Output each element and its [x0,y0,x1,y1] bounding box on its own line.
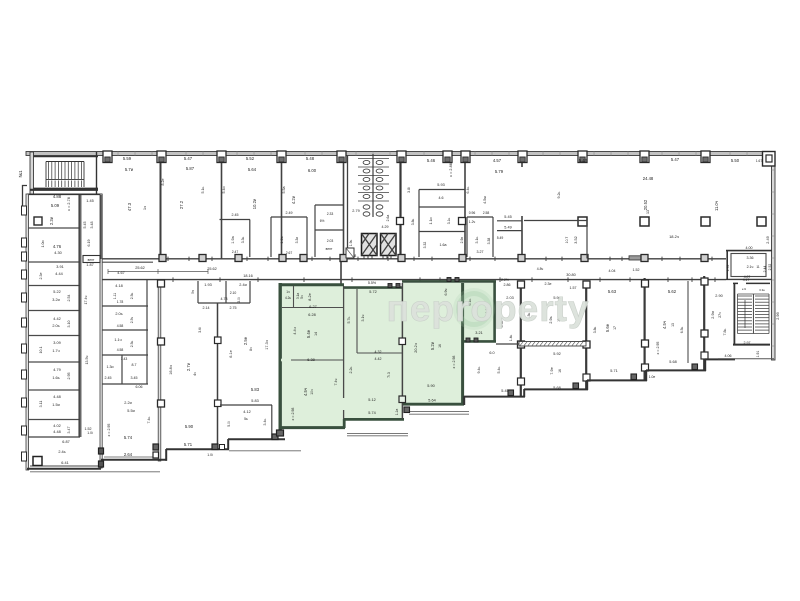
svg-text:1.67: 1.67 [756,159,762,163]
svg-text:18.16: 18.16 [243,274,253,278]
svg-text:3.3и: 3.3и [295,237,299,244]
svg-text:27ч: 27ч [718,312,722,318]
svg-text:14: 14 [314,332,318,336]
svg-text:5.49: 5.49 [497,236,504,240]
svg-text:1.4ь: 1.4ь [509,335,513,342]
svg-text:17: 17 [613,326,617,330]
svg-text:1.9а: 1.9а [231,235,235,243]
svg-text:13.5ч: 13.5ч [85,355,89,364]
svg-text:5.09: 5.09 [51,203,60,208]
svg-text:2.6а: 2.6а [386,215,390,222]
svg-text:2.3е: 2.3е [39,273,43,280]
svg-text:5.7и: 5.7и [125,167,134,172]
svg-text:3.38: 3.38 [487,238,491,245]
svg-text:6%: 6% [320,219,325,223]
svg-text:2.0ь: 2.0ь [115,312,122,316]
svg-text:1.9ь: 1.9ь [280,236,284,243]
svg-text:1.91: 1.91 [756,351,760,358]
svg-text:2.03: 2.03 [327,239,334,243]
svg-text:25.62: 25.62 [207,267,217,271]
svg-text:6.5ь: 6.5ь [680,327,684,334]
svg-text:3.1ч: 3.1ч [361,314,365,321]
svg-text:5.5%: 5.5% [368,281,377,285]
svg-text:18.2ч: 18.2ч [669,234,679,239]
svg-text:5.5а: 5.5а [282,187,286,194]
svg-text:вент: вент [88,258,95,262]
svg-text:4.07: 4.07 [744,275,751,279]
svg-text:1.7ч: 1.7ч [52,349,59,353]
svg-text:4.06: 4.06 [725,354,732,358]
svg-text:2.95: 2.95 [67,373,71,380]
svg-text:47.3: 47.3 [127,202,132,211]
svg-text:4.78: 4.78 [221,297,228,301]
svg-text:20.2ч: 20.2ч [414,343,418,352]
svg-text:2.79: 2.79 [352,209,359,213]
svg-text:10.2и: 10.2и [252,198,257,209]
svg-text:4.12: 4.12 [243,410,250,414]
svg-text:2.44: 2.44 [763,266,767,273]
svg-text:4.30: 4.30 [54,251,61,255]
svg-text:6.06: 6.06 [136,385,143,389]
svg-text:5.52: 5.52 [246,156,255,161]
svg-text:10ч: 10ч [310,389,314,395]
svg-text:7і.3: 7і.3 [387,372,391,378]
svg-text:2.9и: 2.9и [711,311,715,318]
svg-text:8.2е: 8.2е [161,179,165,186]
svg-text:5.48: 5.48 [306,156,315,161]
svg-text:4.42: 4.42 [53,317,60,321]
svg-text:6.28: 6.28 [308,313,315,317]
svg-text:3.48: 3.48 [90,222,94,229]
svg-text:3.45: 3.45 [131,376,138,380]
svg-text:7.9е: 7.9е [550,367,554,374]
svg-text:7.8ь: 7.8ь [723,328,727,335]
svg-text:6.4ь: 6.4ь [466,186,470,193]
svg-text:5.68: 5.68 [669,360,676,364]
svg-text:6.00: 6.00 [308,168,317,173]
svg-text:2.1ч: 2.1ч [747,265,754,269]
svg-text:2.5ч: 2.5ч [130,317,134,324]
svg-text:5.6е: 5.6е [605,323,610,332]
svg-text:1ч: 1ч [143,206,147,210]
svg-text:5.62: 5.62 [668,289,677,294]
svg-text:5.5и: 5.5и [127,409,134,413]
svg-text:1.78: 1.78 [117,300,124,304]
svg-text:5.4ь: 5.4ь [497,366,501,373]
svg-text:2.2%: 2.2% [501,278,509,282]
svg-text:3.47: 3.47 [67,427,71,434]
svg-text:2.33: 2.33 [327,212,334,216]
svg-text:3.1ь: 3.1ь [447,218,451,225]
svg-text:11: 11 [756,265,760,269]
svg-text:5ь: 5ь [244,417,248,421]
svg-text:1.9ь: 1.9ь [349,240,353,247]
svg-text:8.7: 8.7 [132,363,137,367]
svg-text:3.3е: 3.3е [759,288,765,292]
svg-text:9.4ь: 9.4ь [477,366,481,373]
svg-text:2.64: 2.64 [124,452,133,457]
svg-text:5.83: 5.83 [251,399,258,403]
svg-text:1.3и: 1.3и [106,365,113,369]
svg-text:4.42: 4.42 [375,357,382,361]
svg-text:5.47: 5.47 [184,156,193,161]
svg-text:20.52: 20.52 [643,199,648,210]
svg-text:2.0ь: 2.0ь [52,324,59,328]
svg-text:5.22: 5.22 [53,290,60,294]
svg-text:5.4и: 5.4и [222,186,226,193]
svg-text:1.93: 1.93 [204,283,211,287]
svg-text:3.2и: 3.2и [52,298,59,302]
svg-text:3.1ь: 3.1ь [475,236,479,243]
svg-text:5.92: 5.92 [553,352,560,356]
svg-text:10.7: 10.7 [565,237,569,244]
svg-text:2.9и: 2.9и [460,237,464,244]
svg-text:4.76: 4.76 [53,244,62,249]
svg-text:10.1: 10.1 [39,347,43,354]
svg-text:4.2ь: 4.2ь [285,296,291,300]
svg-text:5ч: 5ч [300,295,304,299]
svg-text:х = 2.86: х = 2.86 [449,163,453,177]
svg-text:7.4ч: 7.4ч [334,378,338,385]
svg-text:1.0и: 1.0и [41,240,45,247]
svg-text:1ч: 1ч [286,290,290,294]
svg-text:3.3ь: 3.3ь [241,237,245,244]
svg-text:0.96: 0.96 [469,211,476,215]
svg-text:2.3е: 2.3е [545,282,552,286]
svg-text:2.75: 2.75 [230,306,237,310]
svg-text:2.49: 2.49 [286,211,293,215]
svg-text:2.10: 2.10 [230,291,237,295]
svg-text:х = 2.95: х = 2.95 [656,342,660,355]
svg-text:4.00: 4.00 [746,246,753,250]
svg-text:4.67: 4.67 [117,271,124,275]
svg-text:2.3и: 2.3и [49,216,54,225]
svg-text:3.09: 3.09 [53,341,60,345]
svg-text:2.5е: 2.5е [243,336,248,345]
svg-text:2.9б: 2.9б [776,311,780,319]
svg-text:25.62: 25.62 [135,266,145,270]
svg-text:6.41: 6.41 [61,461,68,465]
svg-text:2.45: 2.45 [232,213,239,217]
svg-text:2.5ь: 2.5ь [130,341,134,348]
svg-text:27.2: 27.2 [179,200,184,209]
svg-text:9.2ь: 9.2ь [557,191,561,198]
svg-text:4.88: 4.88 [53,194,62,199]
svg-text:5.0і: 5.0і [227,421,231,427]
svg-text:3.8ь: 3.8ь [593,327,597,334]
svg-text:5.1ь: 5.1ь [201,186,205,193]
svg-text:5.93: 5.93 [437,183,444,187]
svg-text:16: 16 [558,369,562,373]
svg-text:3.11: 3.11 [39,401,43,408]
svg-text:3.36: 3.36 [747,256,754,260]
svg-text:4.5ч: 4.5ч [662,321,667,329]
svg-text:4.04: 4.04 [609,269,616,273]
svg-text:4.44: 4.44 [55,272,62,276]
svg-text:2.97: 2.97 [744,341,751,345]
svg-text:5.59: 5.59 [123,156,132,161]
svg-text:6.87: 6.87 [62,440,69,444]
svg-text:5.72: 5.72 [369,290,376,294]
svg-text:5.74: 5.74 [368,411,375,415]
svg-text:5.87: 5.87 [186,166,195,171]
svg-text:5.4е: 5.4е [306,329,311,338]
svg-text:11.0ч: 11.0ч [714,201,719,211]
svg-text:4.29: 4.29 [382,225,389,229]
svg-text:4.4ч: 4.4ч [293,327,297,334]
svg-text:5.71: 5.71 [610,369,617,373]
svg-text:3.10: 3.10 [67,321,71,328]
svg-text:5.46: 5.46 [427,158,436,163]
svg-text:х = 2.95: х = 2.95 [107,424,111,437]
svg-text:5.50: 5.50 [731,158,740,163]
svg-text:8ч: 8ч [249,347,253,351]
svg-text:5.83: 5.83 [251,387,260,392]
svg-text:2.2ь: 2.2ь [349,366,353,373]
svg-text:5.7ь: 5.7ь [347,316,351,323]
svg-text:2.90: 2.90 [715,294,722,298]
svg-text:17.3ч: 17.3ч [265,340,269,349]
svg-text:5.64: 5.64 [428,399,435,403]
svg-text:вент: вент [326,247,333,251]
svg-text:1.0е: 1.0е [649,375,656,379]
svg-text:2.45: 2.45 [105,376,112,380]
svg-text:13: 13 [646,210,650,214]
svg-text:4.5ч: 4.5ч [303,388,308,396]
svg-text:13: 13 [671,323,675,327]
svg-text:3.0і: 3.0і [237,297,241,303]
svg-text:6.19: 6.19 [87,240,91,247]
svg-text:2.86: 2.86 [504,283,511,287]
svg-text:6.0: 6.0 [489,351,494,355]
svg-text:5ч: 5ч [191,290,195,294]
svg-text:5.74: 5.74 [124,435,133,440]
svg-text:1.72: 1.72 [726,265,730,272]
svg-text:16.8ч: 16.8ч [169,365,173,374]
svg-text:8.2е: 8.2е [308,293,312,300]
svg-text:3.27: 3.27 [477,250,484,254]
svg-text:1.1в: 1.1в [395,409,399,416]
svg-text:1.0і: 1.0і [207,453,213,457]
svg-text:5.12: 5.12 [368,398,375,402]
svg-text:5.46: 5.46 [579,158,588,163]
svg-text:6.27: 6.27 [309,305,316,309]
svg-text:2.2и: 2.2и [124,401,131,405]
svg-text:5.63: 5.63 [608,289,617,294]
svg-text:1.1и: 1.1и [429,217,433,224]
svg-text:4ч: 4ч [193,372,197,376]
svg-text:4.79: 4.79 [53,368,60,372]
svg-text:пеproperty: пеproperty [386,288,589,329]
svg-text:1.43: 1.43 [121,357,128,361]
svg-text:5.45: 5.45 [504,215,511,219]
svg-text:1.11: 1.11 [113,293,117,299]
svg-text:5.47: 5.47 [671,157,680,162]
svg-text:1.6ь: 1.6ь [52,376,59,380]
svg-text:1.1ч: 1.1ч [114,338,121,342]
svg-text:2.52: 2.52 [768,264,772,271]
svg-text:4.57: 4.57 [493,158,502,163]
svg-text:1.5и: 1.5и [52,403,59,407]
svg-text:4.6: 4.6 [439,196,444,200]
svg-text:1.87: 1.87 [86,263,93,267]
svg-text:3.91: 3.91 [56,265,63,269]
svg-text:4.02: 4.02 [53,424,60,428]
svg-text:2.7и: 2.7и [186,362,191,371]
svg-text:№1: №1 [18,170,23,178]
svg-text:2.54: 2.54 [67,295,71,302]
svg-text:1.0і: 1.0і [87,431,93,435]
svg-text:1.6а: 1.6а [440,243,447,247]
svg-text:3.52: 3.52 [574,236,578,243]
svg-text:4.32: 4.32 [375,350,382,354]
svg-text:2.4ь: 2.4ь [58,450,65,454]
svg-text:5.79: 5.79 [495,169,504,174]
svg-text:5.45: 5.45 [83,222,87,229]
svg-text:х = 2.98: х = 2.98 [452,356,456,369]
svg-text:3.32: 3.32 [423,242,427,249]
svg-text:5.90: 5.90 [427,384,434,388]
svg-text:3.4ь: 3.4ь [263,418,267,425]
svg-text:2.14: 2.14 [203,306,210,310]
svg-text:2.49: 2.49 [766,236,770,243]
svg-text:1.45: 1.45 [86,199,93,203]
svg-text:5.71: 5.71 [184,442,193,447]
svg-text:7.4ь: 7.4ь [147,416,151,423]
svg-text:2.4и: 2.4и [239,283,246,287]
svg-text:4.58: 4.58 [117,324,124,328]
svg-text:1.52: 1.52 [633,268,640,272]
svg-text:5.90: 5.90 [185,424,194,429]
svg-text:16: 16 [438,344,442,348]
svg-text:4.8ч: 4.8ч [537,267,544,271]
svg-text:2.67: 2.67 [286,251,293,255]
svg-text:4.58: 4.58 [117,348,124,352]
svg-text:2.47: 2.47 [232,250,239,254]
svg-text:3.8ь: 3.8ь [411,219,415,226]
svg-text:3.6і: 3.6і [198,327,202,333]
svg-text:3.8і: 3.8і [407,187,411,193]
svg-text:6.1е: 6.1е [229,350,233,357]
svg-text:5.2и: 5.2и [430,341,435,350]
svg-text:2.5ь: 2.5ь [130,293,134,300]
svg-text:30.80: 30.80 [566,273,576,277]
svg-text:4.5ж: 4.5ж [483,196,487,204]
svg-text:х = 2.78: х = 2.78 [67,197,71,211]
svg-text:4.48: 4.48 [53,430,60,434]
svg-text:1.2ч: 1.2ч [469,220,476,224]
svg-text:к-9: к-9 [742,287,746,291]
svg-text:5.49: 5.49 [504,226,511,230]
svg-text:17.4ч: 17.4ч [84,295,88,304]
svg-text:4.48: 4.48 [53,395,60,399]
svg-text:6.38: 6.38 [307,358,314,362]
svg-text:5.64: 5.64 [248,167,257,172]
svg-text:х = 2.98: х = 2.98 [291,408,295,421]
svg-text:2.58: 2.58 [483,211,490,215]
svg-text:3.21: 3.21 [475,331,482,335]
svg-text:4.18: 4.18 [115,284,122,288]
svg-text:24.48: 24.48 [643,176,654,181]
svg-text:4.2и: 4.2и [291,195,296,204]
